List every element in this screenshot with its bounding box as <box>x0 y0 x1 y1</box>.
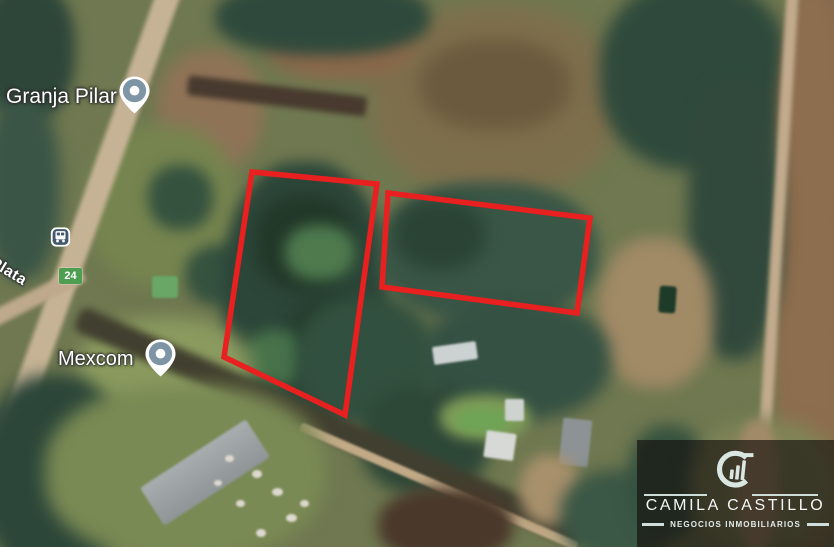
map-pin-icon[interactable] <box>144 338 177 378</box>
route-badge-24: 24 <box>59 268 82 284</box>
tagline-dash <box>642 523 664 526</box>
tagline-dash <box>807 523 829 526</box>
camila-castillo-monogram-icon <box>713 446 759 494</box>
parcel-outline-right <box>382 193 590 313</box>
poi-label-granja-pilar[interactable]: Granja Pilar <box>6 85 117 109</box>
brand-tagline: NEGOCIOS INMOBILIARIOS <box>670 520 801 529</box>
brand-watermark: CAMILA CASTILLO NEGOCIOS INMOBILIARIOS <box>637 440 834 547</box>
bus-stop-icon[interactable] <box>50 226 71 248</box>
satellite-map[interactable]: Granja Pilar Mexcom 24 Plata <box>0 0 834 547</box>
parcel-outline-left <box>224 172 377 415</box>
watermark-divider <box>644 494 707 496</box>
brand-name: CAMILA CASTILLO <box>637 497 834 515</box>
poi-label-mexcom[interactable]: Mexcom <box>58 348 134 371</box>
map-pin-icon[interactable] <box>118 75 151 115</box>
watermark-divider <box>752 494 818 496</box>
route-number: 24 <box>64 270 76 282</box>
